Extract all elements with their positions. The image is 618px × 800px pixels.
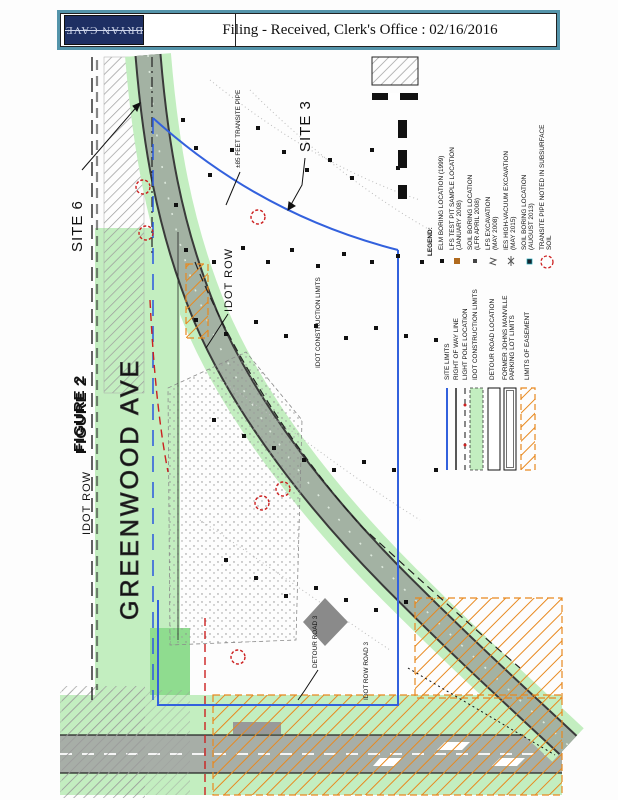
boring-marker: [370, 260, 374, 264]
legend-item-label: TRANSITE PIPE NOTED IN SUBSURFACE: [539, 125, 546, 250]
legend-item-label2: SOIL: [546, 235, 553, 250]
boring-marker: [434, 468, 438, 472]
legend-item-label2: (JANUARY 2008): [456, 200, 463, 250]
boring-marker: [254, 576, 258, 580]
boring-marker: [290, 248, 294, 252]
label-detour-road: DETOUR ROAD 3: [312, 615, 319, 668]
legend-item-label: SOIL BORING LOCATION: [521, 174, 528, 250]
detour-road-symbol: [488, 388, 500, 470]
scale-box: [372, 57, 418, 85]
legend-area-label2: PARKING LOT LIMITS: [509, 315, 516, 380]
legend-area-label: LIGHT POLE LOCATION: [462, 308, 469, 380]
boring-marker: [396, 254, 400, 258]
boring-marker: [374, 326, 378, 330]
boring-marker: [194, 318, 198, 322]
boring-marker: [284, 334, 288, 338]
legend-item-label: LFS TEST PIT SAMPLE LOCATION: [449, 147, 456, 250]
stipple-area: [168, 352, 302, 645]
label-construction-limits: IDOT CONSTRUCTION LIMITS: [315, 277, 322, 368]
boring-marker: [332, 468, 336, 472]
legend-item-label2: (MAY 2008): [492, 216, 499, 250]
boring-marker: [362, 460, 366, 464]
boring-marker: [314, 586, 318, 590]
boring-marker: [302, 458, 306, 462]
elm-boring-symbol: [440, 259, 444, 263]
legend-area-label: FORMER JOHNS MANVILLE: [502, 295, 509, 380]
ies-excavation-symbol: [508, 256, 514, 266]
legend-area-label: IDOT CONSTRUCTION LIMITS: [472, 289, 479, 380]
boring-marker: [272, 446, 276, 450]
soil-boring-2013-symbol: [527, 259, 532, 264]
legend-title: LEGEND:: [427, 227, 434, 256]
label-site-3: SITE 3: [297, 100, 314, 152]
boring-marker: [256, 126, 260, 130]
boring-marker: [230, 148, 234, 152]
label-site-6: SITE 6: [69, 200, 86, 252]
legend-item-label2: (AUGUST 2013): [528, 203, 535, 250]
boring-marker: [174, 203, 178, 207]
boring-marker: [241, 246, 245, 250]
label-transite-note: ±85 FEET TRANSITE PIPE: [235, 90, 242, 168]
boring-marker: [434, 338, 438, 342]
boring-marker: [344, 598, 348, 602]
boring-marker: [224, 558, 228, 562]
legend-item-label: IES HIGH-VACUUM EXCAVATION: [503, 151, 510, 250]
transite-circle: [251, 210, 265, 224]
label-greenwood-ave: GREENWOOD AVE: [116, 358, 144, 620]
legend-item-label2: (MAY 2015): [510, 216, 517, 250]
lfs-test-pit-symbol: [454, 258, 460, 264]
boring-marker: [342, 252, 346, 256]
boring-marker: [328, 158, 332, 162]
legend-area-label: SITE LIMITS: [444, 343, 451, 380]
boring-marker: [316, 264, 320, 268]
legend-symbols: LEGEND: ELM BORING LOCATION (1999) LFS T…: [427, 125, 553, 268]
legend-item-label: ELM BORING LOCATION (1999): [438, 156, 445, 250]
label-idot-row-mid: IDOT ROW: [223, 248, 235, 312]
legend-item-label: SOIL BORING LOCATION: [467, 174, 474, 250]
legend-area-label: DETOUR ROAD LOCATION: [489, 299, 496, 380]
boring-marker: [212, 418, 216, 422]
boring-marker: [396, 166, 400, 170]
legend-item-label2: (LFR APRIL 2008): [474, 198, 481, 250]
label-idot-row-road: IDOT ROW ROAD 3: [363, 641, 370, 700]
boring-marker: [212, 260, 216, 264]
boring-marker: [344, 336, 348, 340]
legend-areas: SITE LIMITS RIGHT OF WAY LINE LIGHT POLE…: [444, 289, 535, 470]
easement-symbol: [521, 388, 535, 470]
legend-item-label: LFS EXCAVATION: [485, 196, 492, 250]
boring-marker: [374, 608, 378, 612]
boring-marker: [208, 173, 212, 177]
boring-marker: [242, 434, 246, 438]
boring-marker: [404, 600, 408, 604]
boring-marker: [404, 334, 408, 338]
boring-marker: [282, 150, 286, 154]
transite-pipe-symbol: [541, 256, 553, 268]
parking-lot-symbol: [504, 388, 516, 470]
boring-marker: [392, 468, 396, 472]
boring-marker: [194, 146, 198, 150]
boring-marker: [184, 248, 188, 252]
boring-marker: [305, 168, 309, 172]
boring-marker: [181, 118, 185, 122]
site-plan-figure: SITE 6 FIGURE 2 FIGURE 2 IDOT ROW GREENW…: [0, 0, 618, 800]
legend-area-label: LIMITS OF EASEMENT: [524, 312, 531, 380]
boring-marker: [266, 260, 270, 264]
lfs-excavation-symbol: [490, 258, 496, 265]
construction-limits-symbol: [470, 388, 483, 470]
soil-boring-2008-symbol: [473, 259, 477, 263]
boring-marker: [420, 260, 424, 264]
label-idot-row-left: IDOT ROW: [81, 471, 93, 535]
boring-marker: [350, 176, 354, 180]
boring-marker: [224, 332, 228, 336]
boring-marker: [370, 148, 374, 152]
boring-marker: [254, 320, 258, 324]
transite-circle: [231, 650, 245, 664]
boring-marker: [284, 594, 288, 598]
label-figure-2: FIGURE 2: [71, 375, 88, 452]
legend-area-label: RIGHT OF WAY LINE: [453, 318, 460, 380]
